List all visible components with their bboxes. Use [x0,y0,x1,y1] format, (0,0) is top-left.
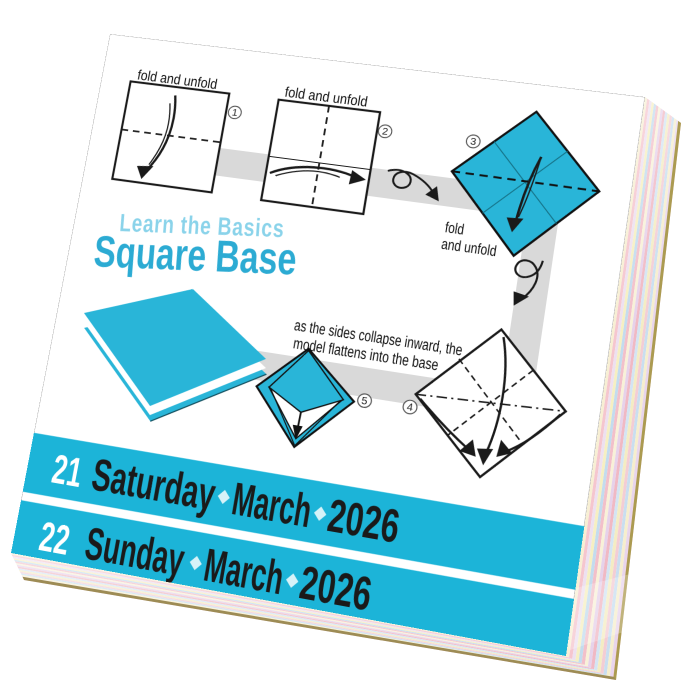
svg-text:Square Base: Square Base [92,226,298,284]
